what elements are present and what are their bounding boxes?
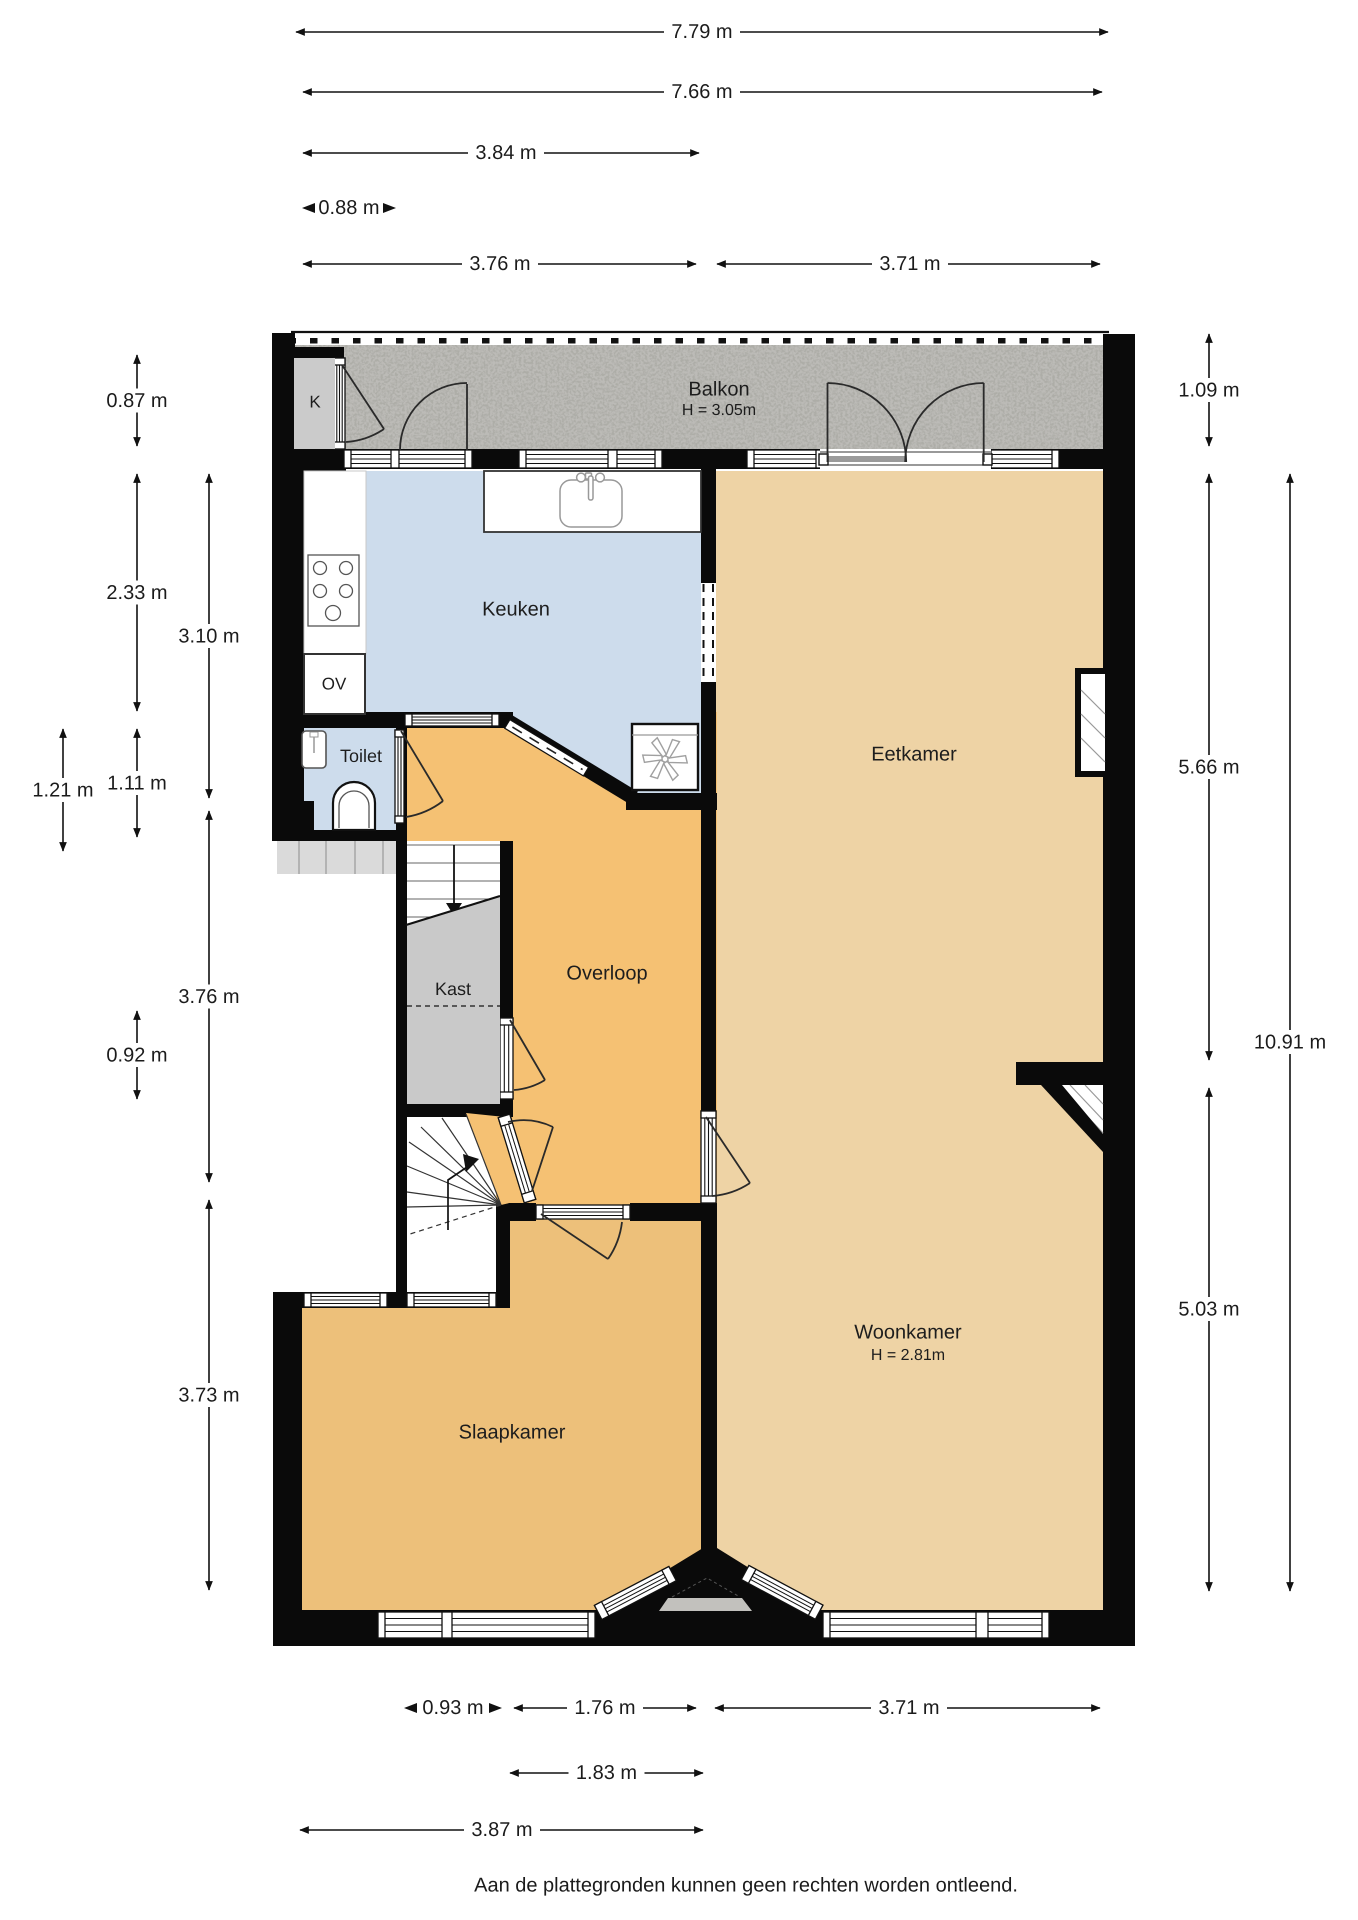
svg-text:10.91 m: 10.91 m [1254,1031,1326,1053]
svg-text:3.76 m: 3.76 m [469,253,530,275]
svg-text:3.84 m: 3.84 m [475,142,536,164]
svg-text:3.73 m: 3.73 m [178,1384,239,1406]
svg-text:H = 2.81m: H = 2.81m [871,1347,945,1364]
svg-text:Kast: Kast [435,979,471,999]
svg-text:K: K [309,392,321,411]
svg-text:Keuken: Keuken [482,598,550,620]
svg-text:0.92 m: 0.92 m [106,1044,167,1066]
svg-text:1.21 m: 1.21 m [32,779,93,801]
svg-text:0.93 m: 0.93 m [422,1697,483,1719]
svg-text:1.76 m: 1.76 m [574,1697,635,1719]
svg-text:3.87 m: 3.87 m [471,1819,532,1841]
svg-text:3.71 m: 3.71 m [879,253,940,275]
svg-text:1.11 m: 1.11 m [107,772,167,794]
svg-text:3.10 m: 3.10 m [178,625,239,647]
svg-text:0.87 m: 0.87 m [106,390,167,412]
svg-text:Toilet: Toilet [340,746,382,766]
svg-text:5.03 m: 5.03 m [1178,1298,1239,1320]
svg-text:3.76 m: 3.76 m [178,986,239,1008]
svg-text:Aan de plattegronden kunnen ge: Aan de plattegronden kunnen geen rechten… [474,1874,1018,1896]
svg-text:2.33 m: 2.33 m [106,582,167,604]
svg-text:7.79 m: 7.79 m [671,21,732,43]
svg-text:Overloop: Overloop [566,962,647,984]
svg-text:5.66 m: 5.66 m [1178,756,1239,778]
svg-text:Slaapkamer: Slaapkamer [459,1421,566,1443]
svg-text:Woonkamer: Woonkamer [854,1321,962,1343]
svg-text:H = 3.05m: H = 3.05m [682,402,756,419]
svg-text:Balkon: Balkon [688,378,749,400]
svg-text:Eetkamer: Eetkamer [871,743,957,765]
svg-text:0.88 m: 0.88 m [318,197,379,219]
svg-text:1.83 m: 1.83 m [576,1762,637,1784]
svg-text:1.09 m: 1.09 m [1178,379,1239,401]
svg-text:7.66 m: 7.66 m [671,81,732,103]
svg-text:OV: OV [322,674,347,693]
svg-text:3.71 m: 3.71 m [878,1697,939,1719]
